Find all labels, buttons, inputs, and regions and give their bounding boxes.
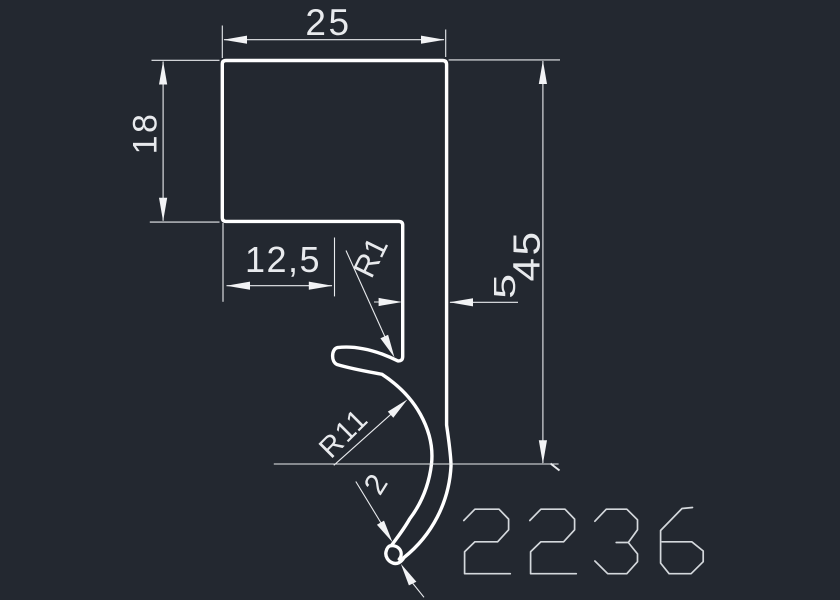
- svg-text:45: 45: [505, 229, 548, 281]
- svg-text:25: 25: [305, 2, 351, 43]
- svg-text:R11: R11: [313, 403, 375, 465]
- svg-text:18: 18: [127, 112, 165, 155]
- svg-text:R1: R1: [346, 232, 395, 283]
- svg-text:12,5: 12,5: [245, 239, 321, 280]
